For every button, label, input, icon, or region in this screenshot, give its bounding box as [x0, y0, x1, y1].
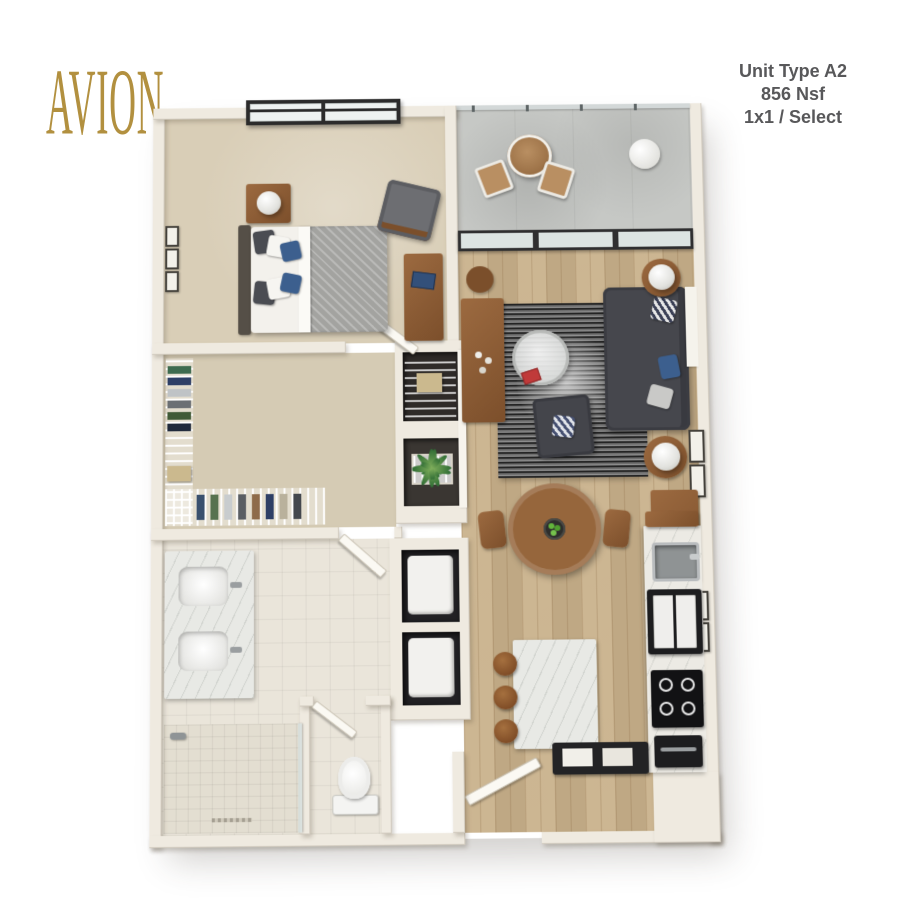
railing-post [526, 105, 529, 112]
wall-art [165, 249, 179, 270]
hanging-clothes [168, 366, 192, 374]
cooktop [651, 670, 704, 728]
wall-bath-north-b [394, 527, 402, 539]
wc-wall-east [381, 696, 392, 834]
wall-bedroom-south-a [152, 342, 346, 355]
balcony-plant-pot [629, 139, 661, 169]
unit-select-label: 1x1 / Select [708, 106, 878, 129]
laptop [411, 271, 436, 290]
railing-post [472, 105, 475, 112]
brand-logo-text: AVION [46, 52, 164, 155]
bed-headboard [238, 225, 251, 335]
vanity-sink-1 [178, 566, 228, 606]
burner [659, 702, 673, 716]
kitchen-island [513, 639, 599, 749]
railing-post [580, 104, 583, 111]
wall-art [165, 271, 179, 292]
console-decor [475, 352, 482, 359]
toilet-bowl [338, 757, 370, 799]
floor-lamp-north [648, 264, 675, 290]
entry-console-boards [562, 748, 592, 766]
railing-post [634, 104, 637, 111]
vanity-faucet-2 [230, 647, 242, 653]
dryer [408, 638, 454, 698]
dining-chair [477, 510, 507, 550]
closet-shelf-south [165, 488, 325, 527]
dishwasher-handle [660, 747, 696, 751]
washer [407, 555, 453, 614]
bedroom-window-mullion-v [321, 101, 325, 122]
console-plant-pot [466, 266, 494, 293]
burner [681, 678, 695, 692]
entry-wall-stub [452, 752, 465, 833]
bed-duvet [308, 226, 388, 333]
unit-info: Unit Type A2 856 Nsf 1x1 / Select [708, 60, 878, 129]
wall-bottom-left [149, 833, 465, 848]
console-table [461, 298, 506, 422]
bar-stool [493, 652, 517, 676]
table-lamp [257, 191, 281, 215]
armchair-pillow [551, 415, 575, 439]
fruit [548, 523, 554, 529]
bed-pillow-blue [279, 272, 302, 294]
fruit-bowl [543, 518, 565, 540]
kitchen-faucet [690, 554, 700, 560]
wall-panel [685, 287, 699, 367]
closet-storage-box [417, 373, 443, 392]
wall-corner-step [653, 772, 721, 843]
vanity-sink-2 [178, 631, 228, 671]
brand-logo: AVION [46, 50, 166, 158]
dining-chair [602, 509, 631, 548]
page: AVION Unit Type A2 856 Nsf 1x1 / Select [0, 0, 900, 900]
wall-bath-north-a [151, 527, 339, 541]
sofa-pillow-patterned [650, 296, 678, 323]
kitchen-sink [652, 542, 700, 582]
shower-drain [212, 818, 252, 822]
bar-stool [494, 719, 518, 743]
shower-glass-panel [298, 723, 302, 832]
unit-area-label: 856 Nsf [708, 83, 878, 106]
folded-clothes-row [197, 495, 205, 520]
desk [404, 253, 444, 341]
bar-stool [493, 685, 517, 709]
closet-box [167, 466, 191, 482]
wc-wall-north-b [366, 696, 391, 706]
bed-pillow-blue [279, 240, 302, 262]
floor-plan [149, 103, 721, 848]
slider-frame-1 [458, 230, 536, 251]
slider-frame-3 [615, 228, 693, 249]
burner [659, 678, 673, 692]
shower-head [170, 733, 186, 740]
wall-art [165, 226, 179, 247]
unit-type-label: Unit Type A2 [708, 60, 878, 83]
burner [681, 701, 695, 715]
wall-art [688, 430, 705, 463]
vanity-faucet-1 [230, 582, 242, 588]
kitchen-upper-cabinet [645, 511, 699, 527]
floor-lamp-south [651, 442, 680, 470]
slider-frame-2 [536, 229, 616, 251]
